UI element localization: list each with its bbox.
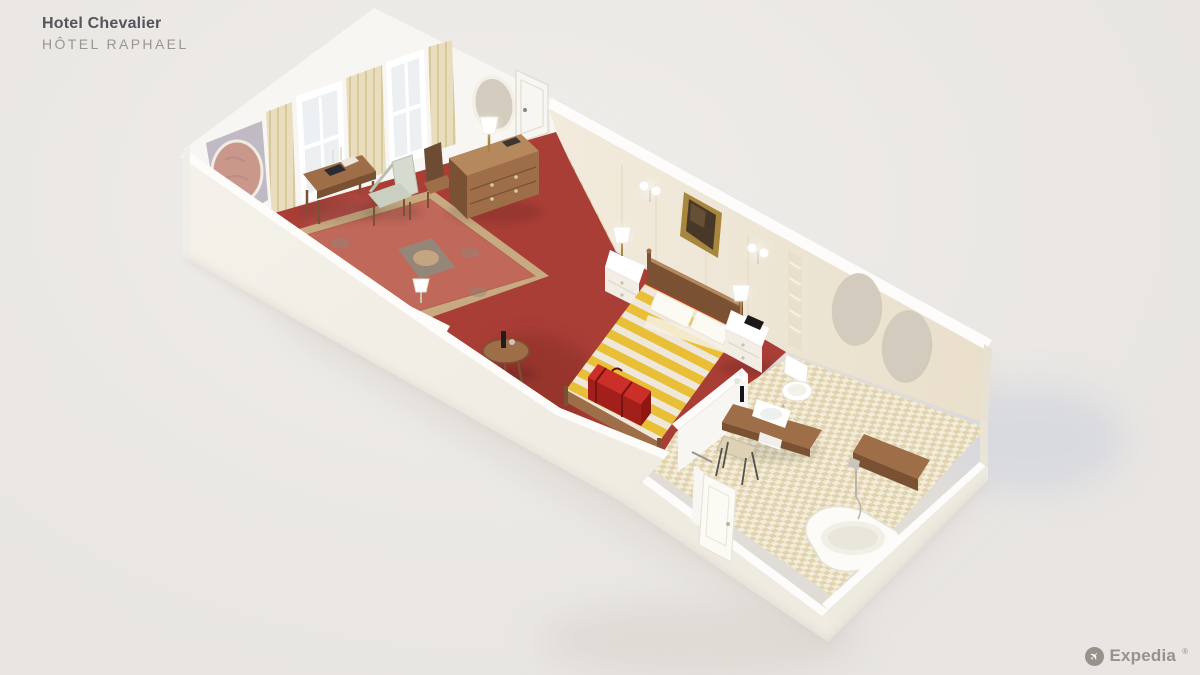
towel-ladder [788, 250, 802, 352]
expedia-logo: ✈ Expedia ® [1085, 646, 1188, 666]
page-title: Hotel Chevalier [42, 14, 189, 34]
floorplan-illustration: Hotel Chevalier HÔTEL RAPHAEL ✈ Expedia … [0, 0, 1200, 675]
registered-mark: ® [1182, 647, 1188, 656]
isometric-scene [0, 0, 1200, 675]
paneled-door [516, 70, 548, 143]
bottle [501, 331, 506, 348]
door-handle [523, 108, 527, 112]
door-knob [726, 522, 730, 526]
expedia-airplane-icon: ✈ [1082, 643, 1109, 670]
curtain-right [428, 40, 456, 152]
window-2 [386, 49, 428, 168]
page-subtitle: HÔTEL RAPHAEL [42, 36, 189, 54]
expedia-wordmark: Expedia [1109, 646, 1176, 666]
header: Hotel Chevalier HÔTEL RAPHAEL [42, 14, 189, 54]
